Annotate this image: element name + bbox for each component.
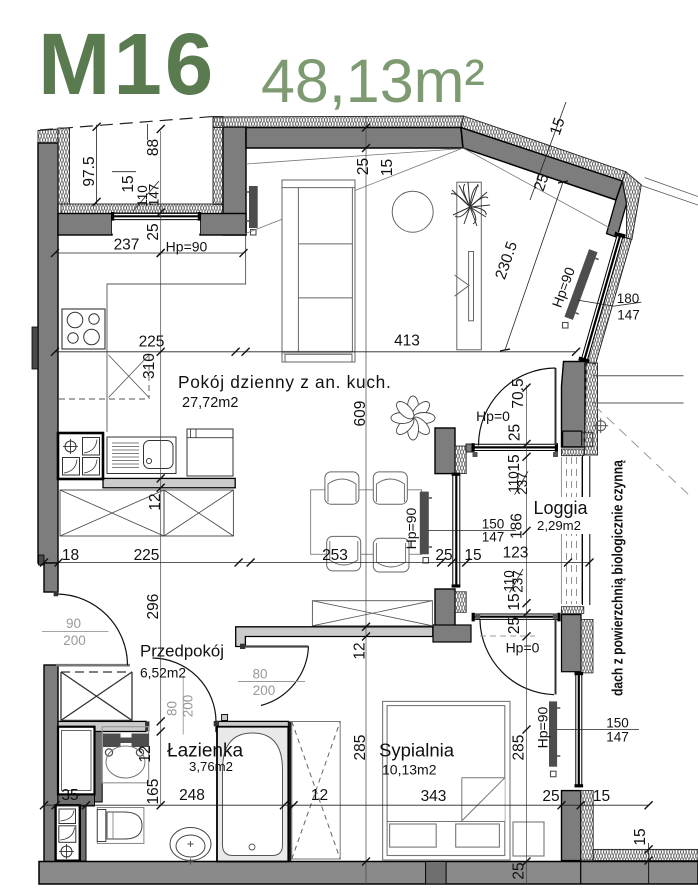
svg-text:88: 88 [145, 139, 162, 156]
svg-text:Hp=90: Hp=90 [403, 507, 419, 549]
svg-text:Hp=0: Hp=0 [476, 408, 510, 424]
svg-text:180: 180 [617, 291, 640, 306]
svg-text:Przedpokój: Przedpokój [140, 642, 224, 661]
svg-text:147: 147 [606, 730, 629, 745]
svg-text:25: 25 [507, 424, 524, 441]
svg-text:Pokój dzienny z an. kuch.: Pokój dzienny z an. kuch. [178, 372, 391, 392]
svg-text:Hp=90: Hp=90 [166, 239, 208, 255]
svg-text:343: 343 [421, 788, 447, 805]
svg-text:2,29m2: 2,29m2 [537, 518, 581, 533]
svg-text:285: 285 [352, 735, 369, 761]
svg-text:Sypialnia: Sypialnia [379, 740, 455, 761]
svg-text:27,72m2: 27,72m2 [182, 395, 238, 411]
svg-text:3,76m2: 3,76m2 [189, 759, 233, 774]
svg-text:25: 25 [506, 617, 523, 634]
svg-text:15: 15 [379, 159, 396, 176]
svg-text:dach z powierzchnią biologiczn: dach z powierzchnią biologicznie czynną [609, 460, 625, 696]
svg-text:15: 15 [506, 593, 523, 610]
svg-text:12: 12 [352, 642, 369, 659]
svg-text:48,13m²: 48,13m² [261, 47, 485, 115]
svg-text:12: 12 [311, 787, 328, 804]
svg-text:70.5: 70.5 [510, 378, 527, 408]
svg-text:413: 413 [394, 333, 420, 350]
svg-text:147: 147 [617, 308, 640, 323]
svg-text:296: 296 [145, 594, 162, 620]
svg-text:97.5: 97.5 [81, 156, 98, 186]
svg-text:12: 12 [137, 745, 154, 762]
svg-text:25: 25 [145, 223, 162, 240]
svg-text:15: 15 [464, 547, 481, 564]
svg-text:150: 150 [606, 716, 629, 731]
svg-text:15: 15 [593, 788, 610, 805]
svg-text:237: 237 [515, 472, 530, 495]
svg-text:200: 200 [253, 683, 276, 698]
svg-text:35: 35 [61, 787, 78, 804]
svg-text:Loggia: Loggia [534, 498, 589, 518]
svg-text:M16: M16 [38, 16, 216, 113]
svg-text:248: 248 [179, 787, 205, 804]
svg-text:253: 253 [322, 547, 348, 564]
svg-text:285: 285 [510, 735, 527, 761]
svg-text:165: 165 [145, 779, 162, 805]
svg-text:12: 12 [147, 493, 164, 510]
svg-text:609: 609 [352, 401, 369, 427]
svg-text:80: 80 [252, 667, 267, 682]
svg-text:15: 15 [506, 454, 523, 471]
svg-text:90: 90 [66, 616, 81, 631]
svg-text:10,13m2: 10,13m2 [382, 762, 437, 778]
svg-text:Hp=0: Hp=0 [506, 640, 540, 656]
svg-text:200: 200 [181, 695, 196, 718]
svg-text:25: 25 [542, 788, 559, 805]
svg-text:80: 80 [165, 701, 180, 716]
svg-text:6,52m2: 6,52m2 [140, 666, 186, 681]
svg-text:237: 237 [114, 237, 140, 254]
svg-text:310: 310 [141, 353, 158, 379]
svg-text:123: 123 [503, 545, 529, 562]
svg-text:225: 225 [134, 547, 160, 564]
svg-text:237: 237 [510, 570, 525, 593]
svg-text:18: 18 [62, 547, 79, 564]
svg-text:Hp=90: Hp=90 [535, 706, 551, 748]
svg-text:147: 147 [147, 184, 162, 207]
svg-text:25: 25 [355, 158, 372, 175]
svg-text:147: 147 [482, 530, 505, 545]
svg-text:200: 200 [63, 633, 86, 648]
svg-text:225: 225 [139, 334, 165, 351]
svg-text:186: 186 [508, 513, 525, 539]
svg-text:25: 25 [510, 862, 527, 879]
svg-text:25: 25 [435, 547, 452, 564]
svg-text:15: 15 [632, 828, 649, 845]
